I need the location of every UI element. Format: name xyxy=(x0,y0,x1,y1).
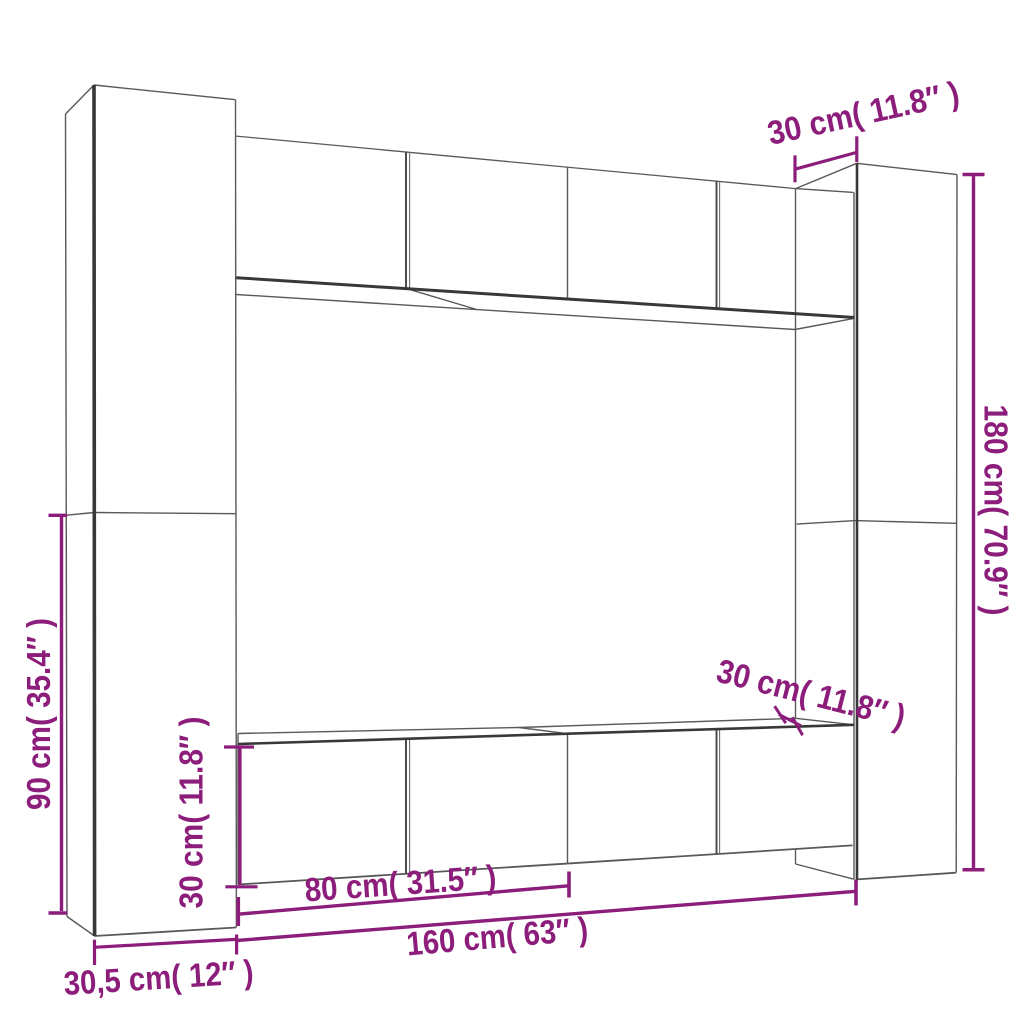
svg-text:90 cm( 35.4″ ): 90 cm( 35.4″ ) xyxy=(21,618,58,810)
svg-text:180 cm( 70.9″ ): 180 cm( 70.9″ ) xyxy=(977,405,1014,616)
svg-text:30 cm( 11.8″ ): 30 cm( 11.8″ ) xyxy=(174,717,211,909)
